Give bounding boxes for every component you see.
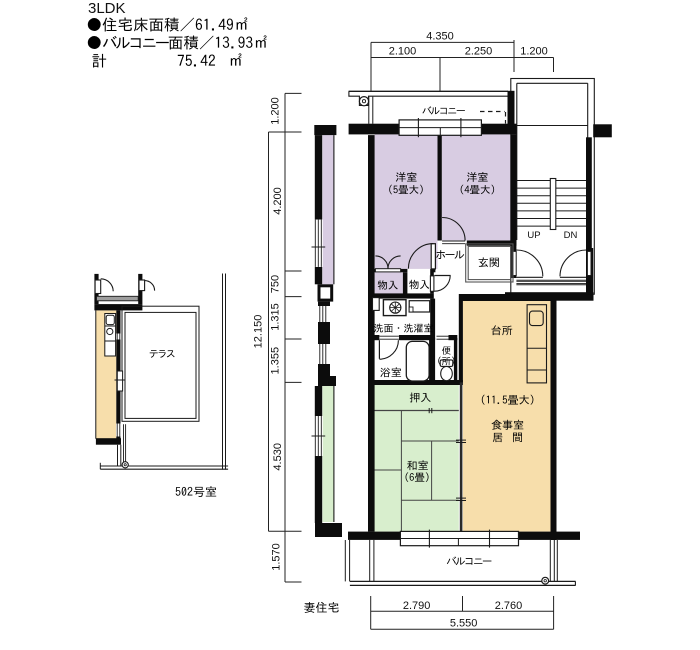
svg-text:4.530: 4.530: [272, 443, 284, 471]
svg-text:2.250: 2.250: [465, 46, 493, 58]
svg-text:12.150: 12.150: [253, 315, 265, 349]
svg-text:1.200: 1.200: [520, 46, 548, 58]
svg-text:DN: DN: [564, 230, 578, 241]
svg-text:UP: UP: [527, 230, 540, 241]
svg-text:5.550: 5.550: [450, 618, 478, 630]
svg-text:2.100: 2.100: [389, 46, 417, 58]
svg-text:4.350: 4.350: [426, 31, 454, 43]
svg-text:2.760: 2.760: [495, 600, 523, 612]
svg-text:1.200: 1.200: [269, 97, 281, 125]
svg-text:1.355: 1.355: [270, 347, 282, 375]
svg-text:1.315: 1.315: [270, 303, 282, 331]
svg-text:2.790: 2.790: [403, 600, 431, 612]
svg-text:3LDK: 3LDK: [88, 0, 126, 17]
svg-text:750: 750: [270, 275, 282, 293]
svg-text:1.570: 1.570: [271, 543, 283, 571]
svg-text:4.200: 4.200: [272, 187, 284, 215]
